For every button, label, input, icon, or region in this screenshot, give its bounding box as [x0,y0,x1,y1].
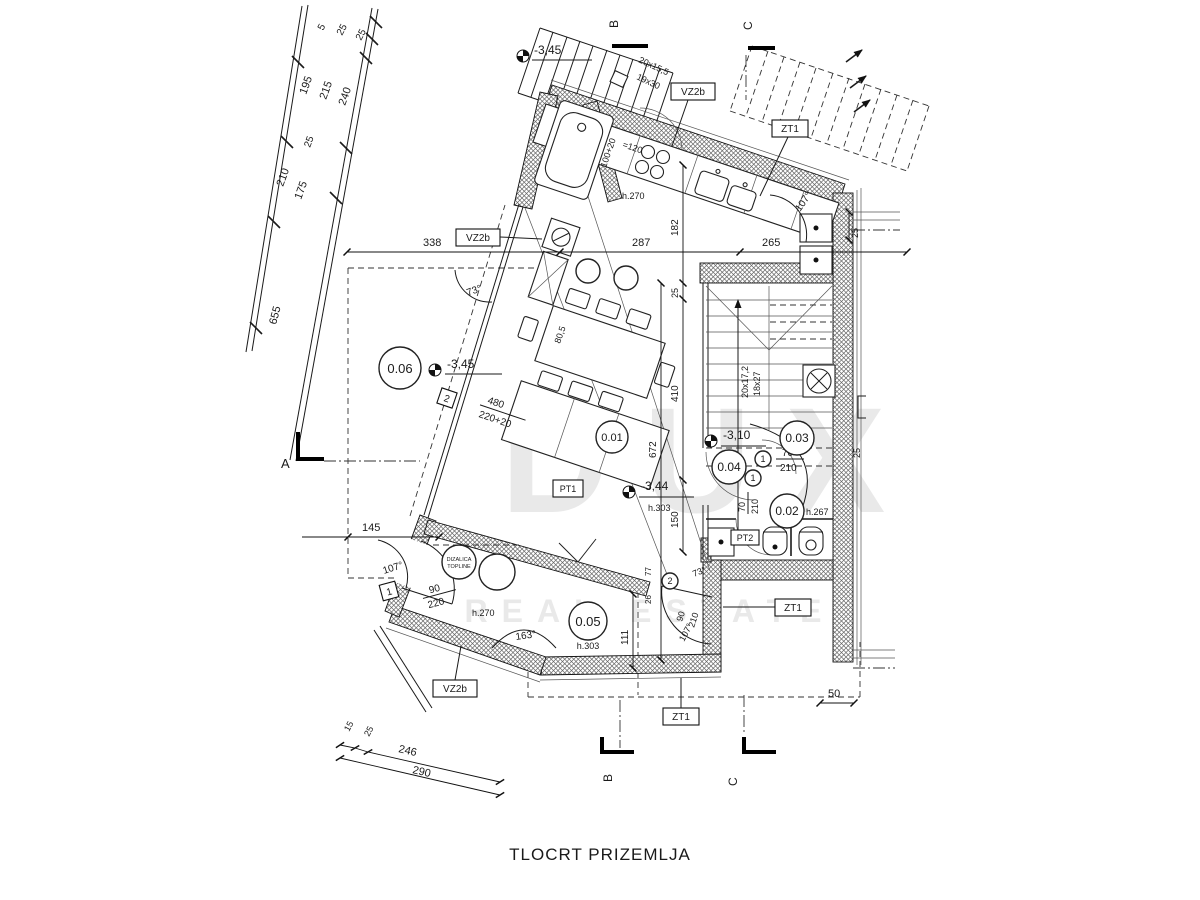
stair-int-label-1: 20x17,2 [740,366,750,398]
tag-pt2: PT2 [737,533,754,543]
dim-label: 25 [852,448,862,458]
door-type-marker: 2 [667,576,672,586]
tag-vz2b: VZ2b [466,233,490,244]
dim-label: 338 [423,237,441,249]
tag-zt1: ZT1 [672,712,690,723]
level-label: -3,10 [723,428,751,442]
dim-label: 265 [762,237,780,249]
stool-icon [576,259,600,283]
dim-label: 195 [298,75,316,96]
dim-label: 26 [644,595,653,604]
level-label: -3,45 [447,357,475,371]
height-label: h.270 [622,191,645,201]
angle-label: 163° [515,629,537,643]
stool-icon [614,266,638,290]
door-type-marker: 1 [750,473,755,483]
height-label: h.267 [806,507,829,517]
dim-label: 15 [342,719,356,733]
dim-label: 290 [411,764,432,780]
exterior-stairs-top-right [730,46,929,171]
room-label-004: 0.04 [717,460,741,474]
level-label: -3,45 [534,43,562,57]
dim-label: 182 [670,219,681,236]
dim-label: 240 [337,86,355,107]
dim-label: 215 [318,80,336,101]
dim-label: 175 [293,180,311,201]
section-b-top-label: B [607,20,621,28]
section-b-bottom-label: B [601,774,615,782]
tag-vz2b: VZ2b [681,87,705,98]
dim-label: 655 [267,305,283,326]
level-label: -3,44 [641,479,669,493]
dim-label: 111 [620,629,631,645]
floor-plan-page: DUX REAL ESTATE 5 25 25 195 215 240 25 2… [0,0,1200,900]
height-label: h.270 [472,608,495,618]
room-label-003: 0.03 [785,431,809,445]
door-type-marker: 1 [760,454,765,464]
dim-label: 145 [362,522,380,534]
tag-zt1: ZT1 [781,124,799,135]
dim-label: 25 [354,27,369,42]
tag-vz2b: VZ2b [443,684,467,695]
dim-label: 50 [828,688,840,700]
toilet-icon [763,527,787,555]
heat-pump-label2: TOPLINE [447,564,471,570]
drawing-title: TLOCRT PRIZEMLJA [509,845,691,864]
wall-bath-bottom [705,560,833,580]
fan-icon [803,365,835,397]
dim-label: 25 [362,724,376,738]
section-c-bottom-label: C [726,777,740,786]
bidet-icon [799,527,823,555]
dim-label: 25 [302,134,316,149]
heat-pump-label1: DIZALICA [447,557,472,563]
wall-right [833,193,853,662]
tag-zt1: ZT1 [784,603,802,614]
dim-label: 210 [275,167,293,188]
dim-label: 210 [780,463,797,474]
tag-pt1: PT1 [560,484,577,494]
room-label-006: 0.06 [387,361,412,376]
dim-label: 220 [427,596,446,611]
floor-plan-drawing: DUX REAL ESTATE 5 25 25 195 215 240 25 2… [0,0,1200,900]
dim-label: 25 [850,228,860,238]
element-marker-2: 2 [437,388,457,408]
dim-label: 246 [397,743,418,759]
stair-int-label-2: 18x27 [752,371,762,396]
dim-label: 410 [670,385,681,402]
dim-label: 77 [644,567,653,576]
room-label-002: 0.02 [775,504,799,518]
section-c-top-label: C [741,21,755,30]
dim-label: 287 [632,237,650,249]
dim-label: 70 [737,502,747,512]
height-label: h.303 [577,641,600,651]
left-dimension-chain: 5 25 25 195 215 240 25 210 175 655 [267,22,369,326]
element-marker-1: 1 [379,581,399,601]
dim-label: 150 [670,511,681,528]
bathroom-fixtures [708,527,823,556]
section-a-label: A [281,456,290,471]
room-label-005: 0.05 [575,614,600,629]
room-label-001: 0.01 [601,432,622,444]
dim-label: 25 [670,288,680,298]
wall-bottom [541,654,721,675]
dim-label: 25 [335,22,350,37]
dim-label: 5 [316,22,329,32]
height-label: h.303 [648,503,671,513]
dim-label: 210 [750,499,760,514]
dim-label: 672 [648,441,659,458]
